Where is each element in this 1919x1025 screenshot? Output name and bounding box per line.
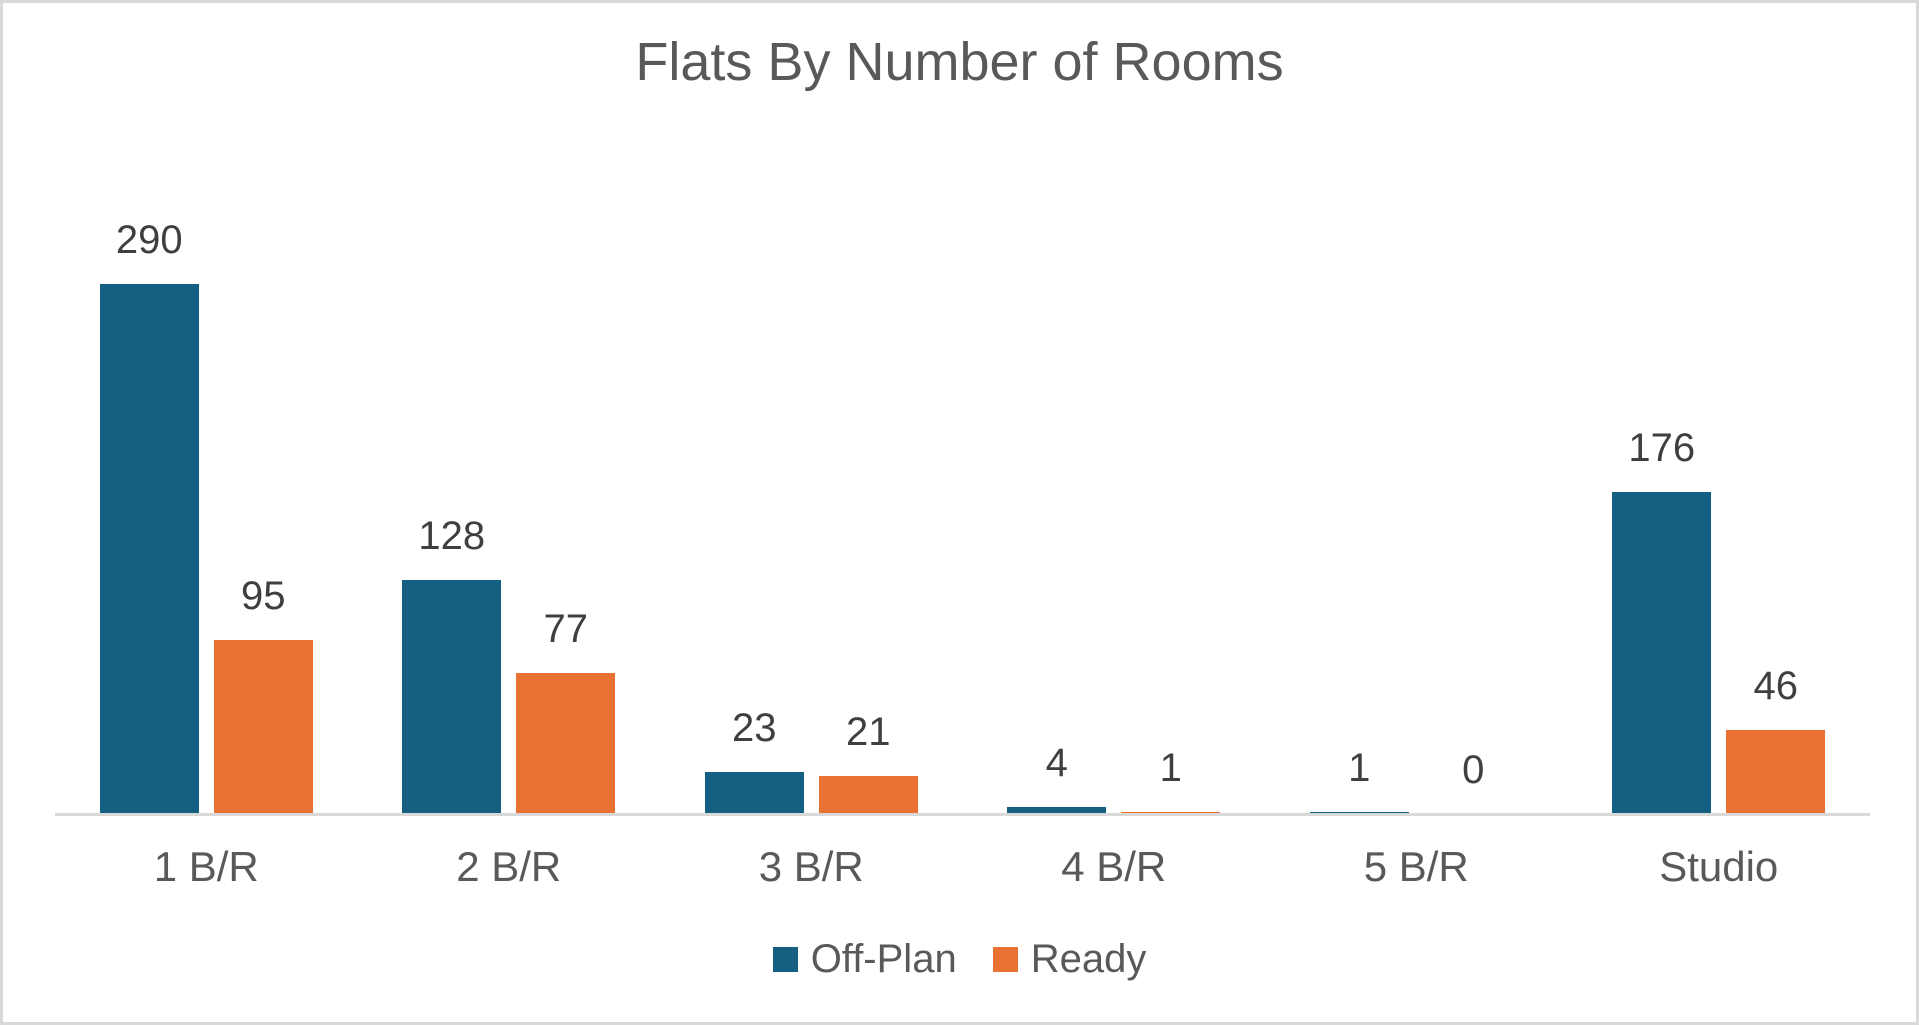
legend: Off-PlanReady xyxy=(3,939,1916,979)
x-axis-label-1-b-r: 1 B/R xyxy=(55,844,358,890)
x-axis-line xyxy=(55,813,1870,816)
legend-item-ready: Ready xyxy=(993,939,1147,979)
bar-ready-3-b-r xyxy=(819,776,918,814)
bar-off-plan-1-b-r xyxy=(100,284,199,814)
legend-swatch-icon xyxy=(773,947,798,972)
bar-off-plan-3-b-r xyxy=(705,772,804,814)
bar-ready-studio xyxy=(1726,730,1825,814)
x-axis-label-5-b-r: 5 B/R xyxy=(1265,844,1568,890)
legend-item-off-plan: Off-Plan xyxy=(773,939,957,979)
bar-off-plan-2-b-r xyxy=(402,580,501,814)
legend-label: Off-Plan xyxy=(811,939,957,979)
data-label-ready-5-b-r: 0 xyxy=(1462,750,1484,790)
data-label-ready-3-b-r: 21 xyxy=(846,712,891,752)
data-label-off-plan-5-b-r: 1 xyxy=(1348,748,1370,788)
x-axis-label-4-b-r: 4 B/R xyxy=(963,844,1266,890)
chart-card: Flats By Number of Rooms 290951287723214… xyxy=(0,0,1919,1025)
data-label-ready-2-b-r: 77 xyxy=(544,609,589,649)
bar-ready-2-b-r xyxy=(516,673,615,814)
x-axis-label-studio: Studio xyxy=(1568,844,1871,890)
legend-label: Ready xyxy=(1031,939,1147,979)
bar-off-plan-studio xyxy=(1612,492,1711,814)
x-axis-label-3-b-r: 3 B/R xyxy=(660,844,963,890)
x-axis-labels: 1 B/R2 B/R3 B/R4 B/R5 B/RStudio xyxy=(55,844,1870,894)
bar-ready-1-b-r xyxy=(214,640,313,814)
x-axis-label-2-b-r: 2 B/R xyxy=(358,844,661,890)
data-label-ready-1-b-r: 95 xyxy=(241,576,286,616)
data-label-off-plan-4-b-r: 4 xyxy=(1046,743,1068,783)
legend-swatch-icon xyxy=(993,947,1018,972)
data-label-ready-studio: 46 xyxy=(1754,666,1799,706)
plot-area: 29095128772321411017646 xyxy=(55,3,1870,814)
data-label-off-plan-3-b-r: 23 xyxy=(732,708,777,748)
data-label-ready-4-b-r: 1 xyxy=(1160,748,1182,788)
data-label-off-plan-studio: 176 xyxy=(1628,428,1695,468)
data-label-off-plan-2-b-r: 128 xyxy=(418,516,485,556)
data-label-off-plan-1-b-r: 290 xyxy=(116,220,183,260)
